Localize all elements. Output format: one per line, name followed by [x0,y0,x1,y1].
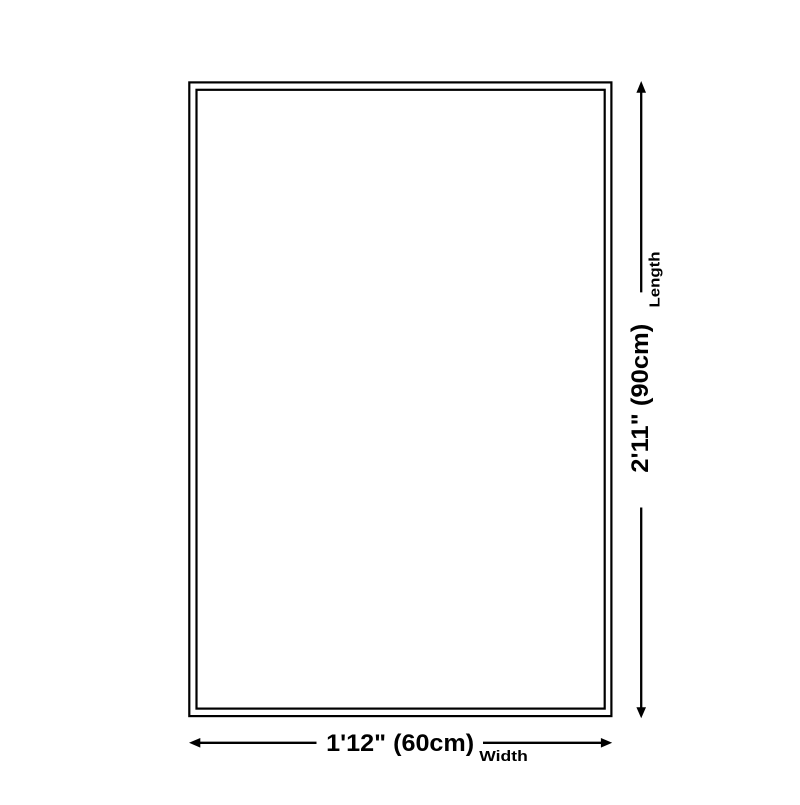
svg-text:Length: Length [647,252,664,308]
svg-text:2'11" (90cm): 2'11" (90cm) [627,324,654,473]
svg-text:Width: Width [479,748,528,765]
svg-text:1'12" (60cm): 1'12" (60cm) [326,730,474,757]
